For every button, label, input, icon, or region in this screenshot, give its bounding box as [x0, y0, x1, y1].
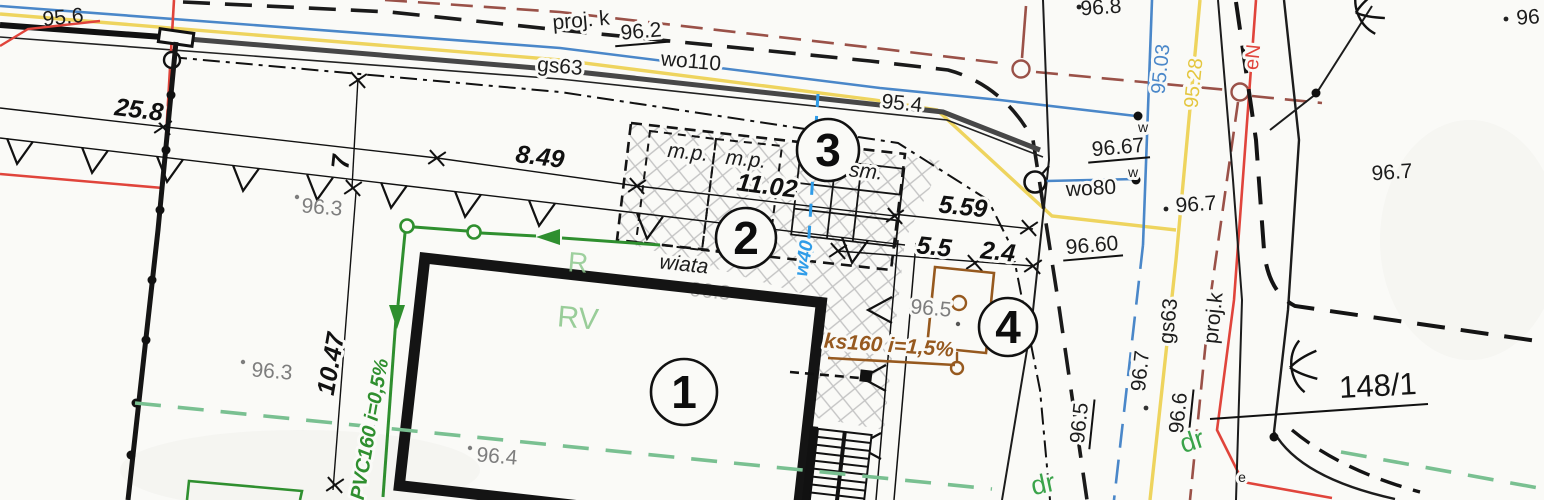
spot-96-cut: 96 [1516, 5, 1541, 30]
boundary-point [167, 91, 176, 100]
object-number-2: 2 [733, 212, 759, 264]
wo80-label: wo80 [1064, 176, 1116, 202]
boundary-point [156, 206, 165, 215]
svg-text:96.2: 96.2 [620, 18, 663, 44]
spot-96-7-a: 96.7 [1175, 192, 1217, 218]
spot-95-6: 95.6 [42, 4, 85, 31]
r-label: R [567, 246, 590, 279]
boundary-point [148, 276, 157, 285]
parcel-number: 148/1 [1338, 366, 1417, 405]
sm-label: sm. [848, 158, 884, 184]
boundary-point [127, 451, 136, 460]
gs63-road-label: gs63 [1155, 297, 1183, 345]
dim-5-59: 5.59 [937, 191, 988, 224]
spot-96-3-b: 96.3 [251, 358, 294, 384]
spot-96-8: 96.8 [1080, 0, 1122, 20]
spot-96-2: 96.2 [613, 18, 669, 47]
service-point [859, 369, 872, 382]
site-plan-drawing: 96.3 [0, 0, 1544, 500]
dim-2-4: 2.4 [978, 236, 1017, 268]
spot-96-67: 96.67 [1086, 133, 1150, 162]
spot-96-5-rot: 96.5 [1065, 397, 1094, 449]
eN-label: eN [1241, 43, 1266, 71]
e-label: e [1238, 469, 1246, 485]
svg-text:96.5: 96.5 [1066, 402, 1093, 445]
object-number-4: 4 [995, 301, 1021, 353]
object-number-3: 3 [815, 124, 841, 176]
boundary-point [162, 146, 171, 155]
site-plan-canvas: 96.3 [0, 0, 1544, 500]
boundary-point [1270, 433, 1279, 442]
water-w-marker-2: w [1127, 164, 1139, 180]
dim-5-5: 5.5 [915, 231, 954, 263]
dim-8-49: 8.49 [514, 140, 566, 174]
boundary-point [1312, 89, 1321, 98]
boundary-point [142, 336, 151, 345]
svg-text:96.67: 96.67 [1091, 134, 1145, 161]
rv-label: RV [556, 300, 600, 336]
water-w-marker-1: w [1137, 119, 1149, 135]
object-number-1: 1 [671, 366, 697, 418]
stairs [801, 426, 872, 500]
spot-95-4: 95.4 [880, 90, 923, 117]
spot-96-60: 96.60 [1061, 231, 1123, 260]
svg-text:95.6: 95.6 [42, 4, 85, 31]
svg-text:96.60: 96.60 [1065, 232, 1119, 259]
spot-96-7-b: 96.7 [1371, 160, 1413, 186]
spot-96-5: 96.5 [910, 295, 953, 321]
spot-96-4: 96.4 [476, 443, 519, 470]
mp-label-2: m.p. [724, 146, 767, 173]
spot-96-7-rot: 96.7 [1127, 350, 1154, 393]
gs63-label: gs63 [536, 53, 583, 80]
spot-96-3-a: 96.3 [301, 194, 344, 220]
mp-label-1: m.p. [666, 139, 709, 166]
